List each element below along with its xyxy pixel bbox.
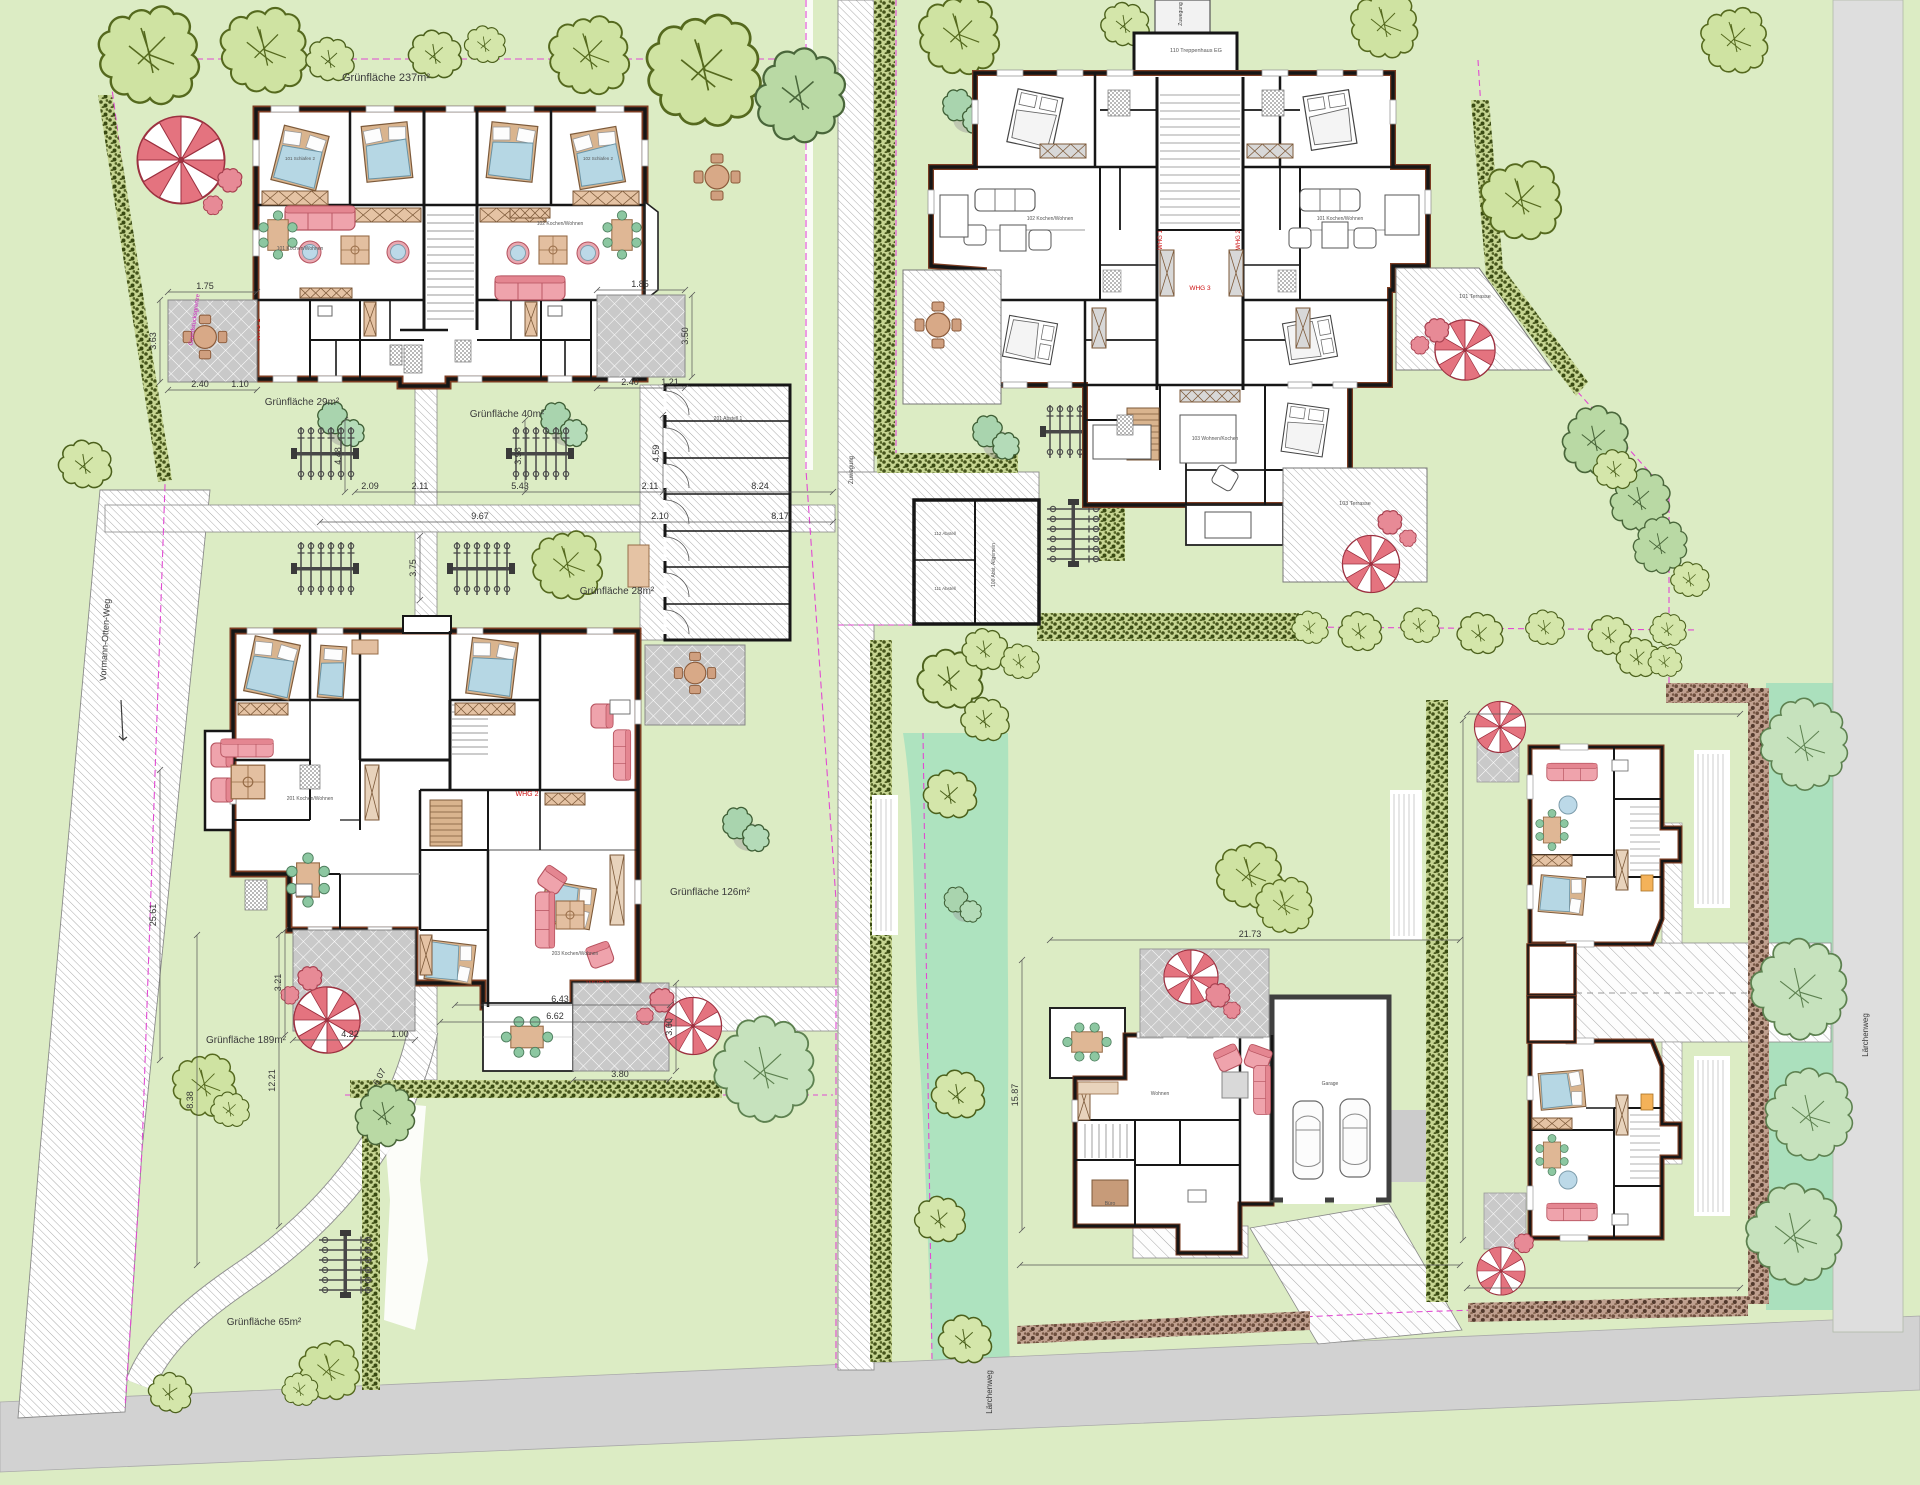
svg-text:8.38: 8.38 xyxy=(185,1091,195,1109)
svg-text:4.48: 4.48 xyxy=(333,447,343,465)
svg-text:Zuwegung: Zuwegung xyxy=(849,456,855,484)
svg-text:15.87: 15.87 xyxy=(1010,1084,1020,1107)
svg-text:WHG 3: WHG 3 xyxy=(1189,285,1211,292)
svg-text:101 Kochen/Wohnen: 101 Kochen/Wohnen xyxy=(277,246,324,252)
svg-text:1.85: 1.85 xyxy=(631,279,649,289)
svg-text:3.60: 3.60 xyxy=(664,1018,674,1036)
svg-text:Grünfläche 189m²: Grünfläche 189m² xyxy=(206,1035,287,1046)
svg-text:Grünfläche 29m²: Grünfläche 29m² xyxy=(265,397,340,408)
svg-text:3.98: 3.98 xyxy=(513,447,523,465)
svg-text:Lärchenweg: Lärchenweg xyxy=(1861,1013,1870,1057)
svg-text:Garage: Garage xyxy=(1322,1081,1339,1087)
svg-text:3.21: 3.21 xyxy=(273,974,283,992)
svg-text:12.21: 12.21 xyxy=(267,1069,277,1092)
svg-text:6.62: 6.62 xyxy=(546,1011,564,1021)
svg-text:25.61: 25.61 xyxy=(148,904,158,927)
svg-text:Grünfläche 237m²: Grünfläche 237m² xyxy=(342,72,430,84)
svg-text:Grünfläche 28m²: Grünfläche 28m² xyxy=(580,586,655,597)
svg-text:110 Treppenhaus EG: 110 Treppenhaus EG xyxy=(1170,48,1222,54)
svg-text:2.10: 2.10 xyxy=(651,511,669,521)
svg-text:201 Abstell 1: 201 Abstell 1 xyxy=(714,416,743,422)
svg-text:101 Schlafen 2: 101 Schlafen 2 xyxy=(285,156,316,161)
svg-text:2.11: 2.11 xyxy=(412,481,429,491)
svg-text:Zuwegung: Zuwegung xyxy=(1178,2,1184,26)
svg-text:Grünfläche 65m²: Grünfläche 65m² xyxy=(227,1317,302,1328)
svg-text:102 Schlafen 2: 102 Schlafen 2 xyxy=(583,156,614,161)
svg-text:201 Kochen/Wohnen: 201 Kochen/Wohnen xyxy=(287,796,334,802)
svg-text:1.10: 1.10 xyxy=(231,379,249,389)
svg-text:Grünfläche 40m²: Grünfläche 40m² xyxy=(470,409,545,420)
svg-text:1.00: 1.00 xyxy=(391,1029,409,1039)
svg-text:2.40: 2.40 xyxy=(191,379,209,389)
svg-text:WHG 2: WHG 2 xyxy=(516,791,539,798)
svg-text:102 Kochen/Wohnen: 102 Kochen/Wohnen xyxy=(537,221,584,227)
svg-text:8.24: 8.24 xyxy=(751,481,769,491)
svg-text:1.21: 1.21 xyxy=(661,377,679,387)
svg-text:100 Abst. Allgemein: 100 Abst. Allgemein xyxy=(991,543,997,587)
svg-text:111 Abstell: 111 Abstell xyxy=(934,586,955,591)
svg-text:112 Abstell: 112 Abstell xyxy=(934,531,956,536)
svg-text:103 Terrasse: 103 Terrasse xyxy=(1339,501,1371,507)
svg-text:2.40: 2.40 xyxy=(621,377,639,387)
svg-text:9.67: 9.67 xyxy=(471,511,489,521)
svg-text:Grünfläche 126m²: Grünfläche 126m² xyxy=(670,887,751,898)
svg-text:6.43: 6.43 xyxy=(551,994,569,1004)
svg-text:8.17: 8.17 xyxy=(771,511,789,521)
svg-text:3.63: 3.63 xyxy=(148,332,158,350)
svg-text:Wohnen: Wohnen xyxy=(1151,1091,1170,1097)
svg-text:103 Wohnen/Kochen: 103 Wohnen/Kochen xyxy=(1192,436,1239,442)
svg-text:3.50: 3.50 xyxy=(680,327,690,345)
svg-text:WHG 1: WHG 1 xyxy=(1158,230,1164,250)
svg-text:1.75: 1.75 xyxy=(196,281,214,291)
svg-text:101 Kochen/Wohnen: 101 Kochen/Wohnen xyxy=(1317,216,1364,222)
svg-text:2.09: 2.09 xyxy=(361,481,379,491)
svg-text:5.43: 5.43 xyxy=(511,481,529,491)
svg-text:4.22: 4.22 xyxy=(341,1029,359,1039)
svg-text:203 Kochen/Wohnen: 203 Kochen/Wohnen xyxy=(552,951,599,957)
svg-text:WHG 2: WHG 2 xyxy=(1236,230,1242,250)
svg-text:3.75: 3.75 xyxy=(408,559,418,577)
svg-text:21.73: 21.73 xyxy=(1239,929,1262,939)
svg-text:4.59: 4.59 xyxy=(651,445,661,463)
svg-text:102 Kochen/Wohnen: 102 Kochen/Wohnen xyxy=(1027,216,1074,222)
svg-text:Büro: Büro xyxy=(1105,1201,1116,1207)
svg-text:Lärchenweg: Lärchenweg xyxy=(985,1370,994,1414)
svg-text:3.80: 3.80 xyxy=(611,1069,629,1079)
svg-text:2.11: 2.11 xyxy=(642,481,659,491)
svg-text:101 Terrasse: 101 Terrasse xyxy=(1459,294,1491,300)
